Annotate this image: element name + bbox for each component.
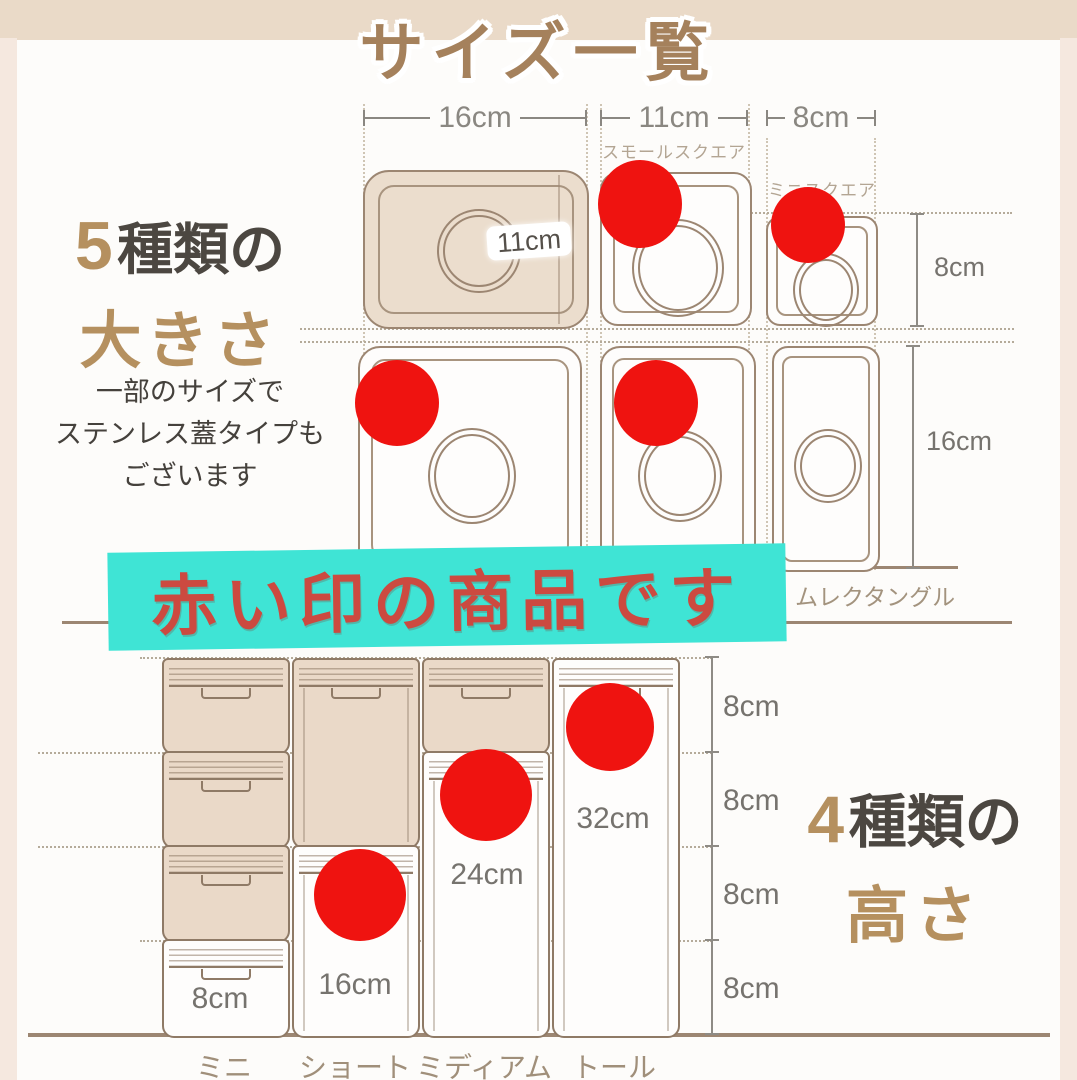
mini-container (162, 751, 290, 849)
rect-height-measure (912, 346, 914, 568)
red-mark-banner: 赤い印の商品です (107, 543, 786, 650)
mini-height-label: 8cm (170, 982, 270, 1016)
tall-height-label: 32cm (558, 802, 668, 836)
size-chart-infographic: サイズ一覧 5 種類の 大きさ 一部のサイズで ステンレス蓋タイプも ございます… (0, 0, 1077, 1080)
slim-rectangle-label: ムレクタングル (795, 578, 955, 612)
size-subject: 大きさ (40, 290, 320, 380)
height-section-heading: 4 種類の 高さ (770, 775, 1060, 955)
width-measure-11cm: 11cm (600, 108, 748, 128)
size-section-heading: 5 種類の 大きさ (40, 205, 320, 380)
note-line-3: ございます (30, 456, 350, 498)
guide-line (766, 138, 768, 570)
red-mark-tall (566, 683, 654, 771)
medium-height-label: 24cm (432, 858, 542, 892)
unit-tick-label: 8cm (723, 690, 780, 724)
guide-line (586, 104, 588, 570)
red-mark-banner-text: 赤い印の商品です (150, 545, 743, 649)
red-mark-short (314, 849, 406, 941)
size-count: 5 (75, 208, 113, 284)
red-mark-rectangle-16 (355, 360, 439, 446)
red-mark-medium (440, 749, 532, 841)
column-name-tall: トール (546, 1046, 682, 1080)
stainless-lid-note: 一部のサイズで ステンレス蓋タイプも ございます (30, 372, 350, 498)
small-square-label: スモールスクエア (594, 138, 754, 163)
column-name-mini: ミニ (162, 1046, 286, 1080)
height-count: 4 (807, 782, 844, 856)
lid-circle (793, 253, 859, 327)
lid-circle (794, 429, 862, 503)
height-subject: 高さ (770, 865, 1060, 955)
square-height-measure (916, 214, 918, 326)
lid-circle (428, 428, 516, 524)
frame-left-strip (0, 38, 17, 1080)
square-height-label: 8cm (934, 252, 985, 283)
width-measure-8cm: 8cm (766, 108, 876, 128)
guide-line (300, 341, 1014, 343)
page-title: サイズ一覧 (0, 2, 1077, 94)
note-line-2: ステンレス蓋タイプも (30, 414, 350, 456)
mini-container (162, 658, 290, 755)
note-line-1: 一部のサイズで (30, 372, 350, 414)
red-mark-small-square (598, 160, 682, 248)
column-name-medium: ミディアム (408, 1046, 560, 1080)
unit-tick-label: 8cm (723, 972, 780, 1006)
short-height-label: 16cm (300, 968, 410, 1002)
height-count-suffix: 種類の (849, 790, 1023, 855)
height-unit-measure (711, 657, 713, 1034)
width-measure-11cm-label: 11cm (630, 101, 717, 135)
lid-diameter-badge: 11cm (486, 221, 572, 261)
size-count-suffix: 種類の (117, 218, 285, 281)
red-mark-rectangle-11 (614, 360, 698, 446)
red-mark-mini-square (771, 187, 845, 263)
short-container (292, 658, 420, 849)
mini-container (162, 845, 290, 943)
container-slim-rectangle-top-view (772, 346, 880, 572)
width-measure-16cm-label: 16cm (430, 101, 519, 135)
frame-right-strip (1060, 38, 1077, 1080)
rect-height-label: 16cm (922, 424, 996, 459)
medium-container-top (422, 658, 550, 755)
width-measure-8cm-label: 8cm (785, 101, 858, 135)
width-measure-16cm: 16cm (363, 108, 587, 128)
